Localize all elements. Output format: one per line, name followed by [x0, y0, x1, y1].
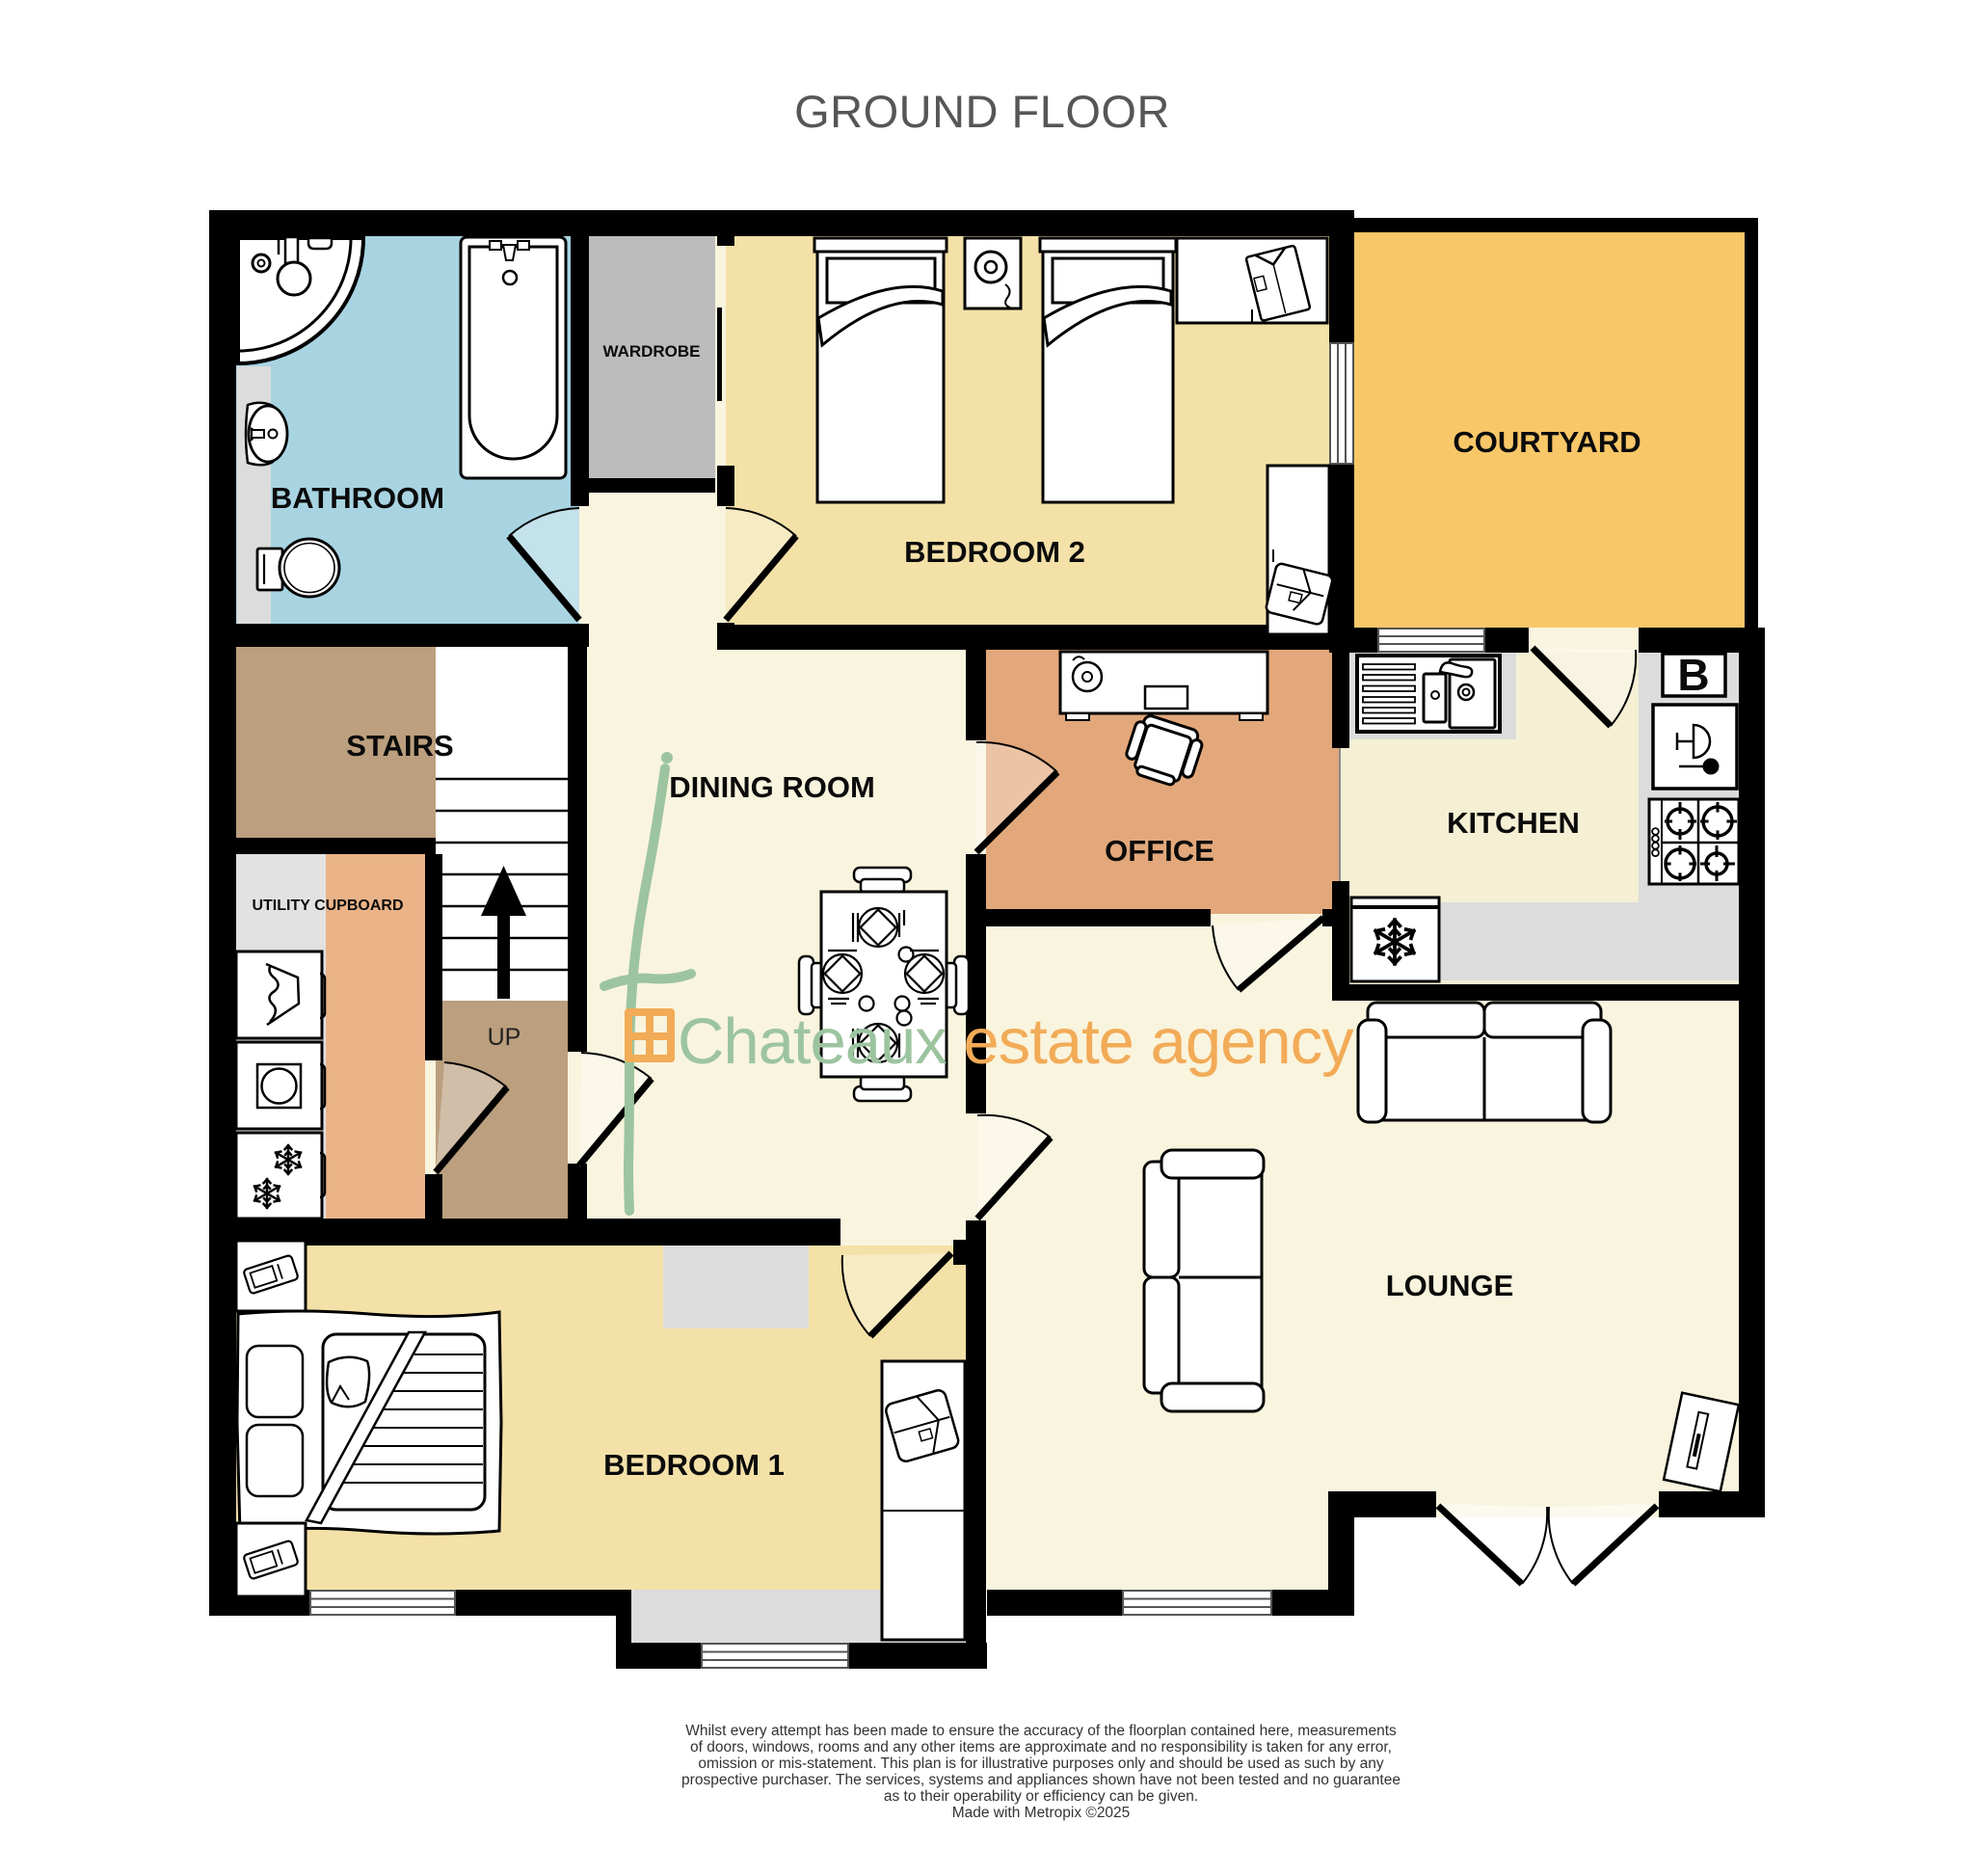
svg-text:Chateaux estate agency: Chateaux estate agency	[678, 1005, 1354, 1078]
svg-text:COURTYARD: COURTYARD	[1453, 425, 1641, 459]
svg-text:BATHROOM: BATHROOM	[271, 481, 444, 515]
svg-text:of doors, windows, rooms and a: of doors, windows, rooms and any other i…	[690, 1739, 1392, 1755]
svg-text:Whilst every attempt has been: Whilst every attempt has been made to en…	[685, 1723, 1397, 1739]
svg-text:Made with Metropix ©2025: Made with Metropix ©2025	[952, 1805, 1131, 1821]
svg-text:B: B	[1677, 650, 1709, 700]
svg-text:WARDROBE: WARDROBE	[602, 342, 700, 361]
svg-text:UP: UP	[488, 1024, 521, 1051]
svg-text:UTILITY CUPBOARD: UTILITY CUPBOARD	[252, 898, 403, 914]
svg-text:STAIRS: STAIRS	[346, 729, 453, 763]
svg-text:OFFICE: OFFICE	[1105, 834, 1214, 868]
svg-text:KITCHEN: KITCHEN	[1447, 806, 1580, 840]
svg-text:BEDROOM 2: BEDROOM 2	[904, 535, 1085, 569]
svg-text:BEDROOM 1: BEDROOM 1	[603, 1448, 785, 1482]
svg-text:prospective purchaser. The ser: prospective purchaser. The services, sys…	[681, 1772, 1400, 1788]
svg-text:DINING ROOM: DINING ROOM	[669, 770, 875, 804]
svg-text:as to their operability or eff: as to their operability or efficiency ca…	[884, 1788, 1198, 1805]
svg-text:omission or mis-statement. Thi: omission or mis-statement. This plan is …	[698, 1755, 1384, 1772]
svg-text:GROUND FLOOR: GROUND FLOOR	[794, 86, 1170, 137]
svg-text:LOUNGE: LOUNGE	[1386, 1269, 1514, 1302]
